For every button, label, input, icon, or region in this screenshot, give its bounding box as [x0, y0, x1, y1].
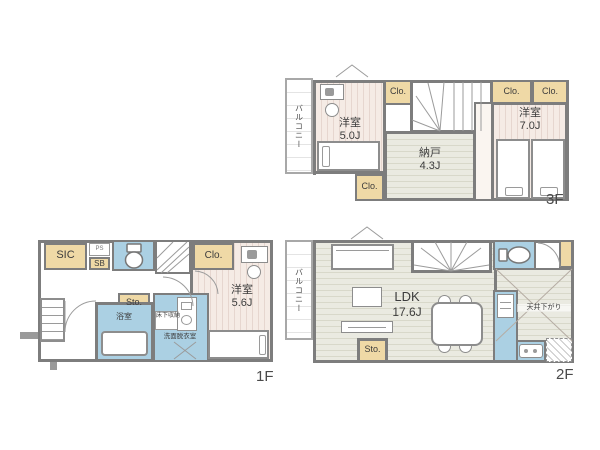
bathtub-icon: [101, 331, 148, 356]
shoe-in-closet-label: SIC: [44, 249, 87, 262]
room-3f-west-label: 洋室5.0J: [322, 117, 378, 142]
lowered-ceiling-label: 天井下がり: [517, 304, 571, 312]
floor-2f-label: 2F: [556, 366, 574, 383]
closet-3f-b-label: Clo.: [491, 86, 532, 96]
closet-1f-label: Clo.: [193, 250, 234, 262]
closet-2f-small: [559, 240, 573, 268]
balcony-3f: バルコニー: [285, 78, 313, 174]
storage-2f-label: Sto.: [357, 344, 388, 354]
folding-door-icon: [173, 341, 197, 360]
chair-icon: [325, 103, 339, 117]
bathroom-label: 浴室: [99, 312, 149, 321]
balcony-3f-label: バルコニー: [294, 104, 305, 149]
desk-icon: [241, 246, 268, 263]
storage-1f-label: Sto.: [118, 297, 150, 307]
shoe-box-label: SB: [89, 259, 110, 268]
stairs-1f-icon: [155, 240, 191, 274]
desk-icon: [320, 84, 344, 100]
bed-icon: [496, 139, 530, 199]
balcony-2f: バルコニー: [285, 240, 313, 340]
room-3f-storage-label: 納戸4.3J: [400, 147, 460, 172]
stairs-2f-icon: [411, 240, 492, 273]
washroom-label: 洗面脱衣室: [152, 333, 208, 340]
room-2f-ldk-label: LDK17.6J: [372, 290, 442, 320]
block-3f-notch: [308, 175, 355, 205]
roof-vent-icon: [335, 64, 369, 78]
floor-1f-label: 1F: [256, 368, 274, 385]
closet-3f-c-label: Clo.: [532, 86, 568, 96]
closet-3f-d-label: Clo.: [355, 181, 384, 191]
stairs-3f-icon: [410, 80, 493, 133]
room-3f-east-label: 洋室7.0J: [503, 107, 557, 132]
floorplan-canvas: バルコニー 洋室5.0J Clo. Clo. Clo. 洋室7.0J: [0, 0, 600, 450]
floor-3f-label: 3F: [546, 191, 564, 208]
door-swing-arc: [537, 242, 561, 268]
kitchen-sink-icon: [519, 344, 543, 358]
bed-icon: [208, 330, 269, 359]
exterior-stairs-1f: [40, 298, 65, 342]
toilet-icon: [122, 243, 146, 269]
roof-vent-icon: [350, 226, 384, 240]
chair-icon: [247, 265, 261, 279]
room-1f-bedroom-label: 洋室5.6J: [214, 284, 270, 309]
balcony-2f-label: バルコニー: [294, 268, 305, 313]
bed-icon: [317, 141, 380, 171]
toilet-icon: [498, 244, 534, 266]
tv-board-icon: [341, 321, 393, 333]
bed-icon: [531, 139, 565, 199]
underfloor-storage-label: 床下収納: [156, 313, 180, 321]
door-swing-arc: [162, 276, 194, 307]
door-swing-arc: [64, 300, 97, 333]
sofa-icon: [331, 244, 394, 270]
pipe-space-label: PS: [89, 246, 110, 253]
closet-3f-a-label: Clo.: [384, 86, 412, 96]
